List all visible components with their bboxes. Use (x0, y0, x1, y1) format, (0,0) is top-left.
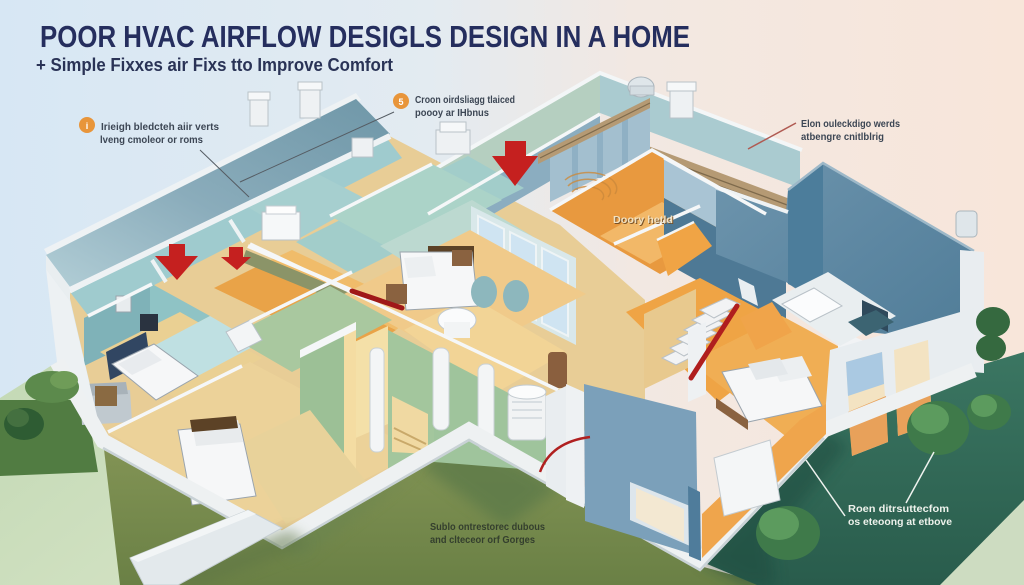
svg-text:POOR HVAC AIRFLOW DESIGLS DESI: POOR HVAC AIRFLOW DESIGLS DESIGN IN A HO… (40, 19, 690, 54)
svg-text:poooy ar IHbnus: poooy ar IHbnus (415, 107, 489, 119)
svg-text:lveng cmoleor or roms: lveng cmoleor or roms (100, 134, 203, 146)
svg-text:os eteoong at etbove: os eteoong at etbove (848, 516, 952, 528)
svg-text:i: i (86, 121, 89, 131)
svg-text:atbengre cnitlblrig: atbengre cnitlblrig (801, 131, 884, 143)
svg-text:+ Simple Fixxes air Fixs tto I: + Simple Fixxes air Fixs tto Improve Com… (36, 54, 393, 75)
svg-text:Roen ditrsuttecfom: Roen ditrsuttecfom (848, 503, 949, 515)
svg-text:Irieigh bledcteh aiir verts: Irieigh bledcteh aiir verts (101, 121, 219, 133)
svg-text:5: 5 (398, 97, 403, 107)
svg-text:Elon ouleckdigo werds: Elon ouleckdigo werds (801, 118, 900, 130)
svg-text:and clteceor orf Gorges: and clteceor orf Gorges (430, 534, 535, 546)
svg-text:Sublo ontrestorec dubous: Sublo ontrestorec dubous (430, 521, 545, 533)
svg-text:Croon oirdsliagg tlaiced: Croon oirdsliagg tlaiced (415, 94, 515, 106)
svg-text:Doory hetld: Doory hetld (613, 214, 673, 226)
